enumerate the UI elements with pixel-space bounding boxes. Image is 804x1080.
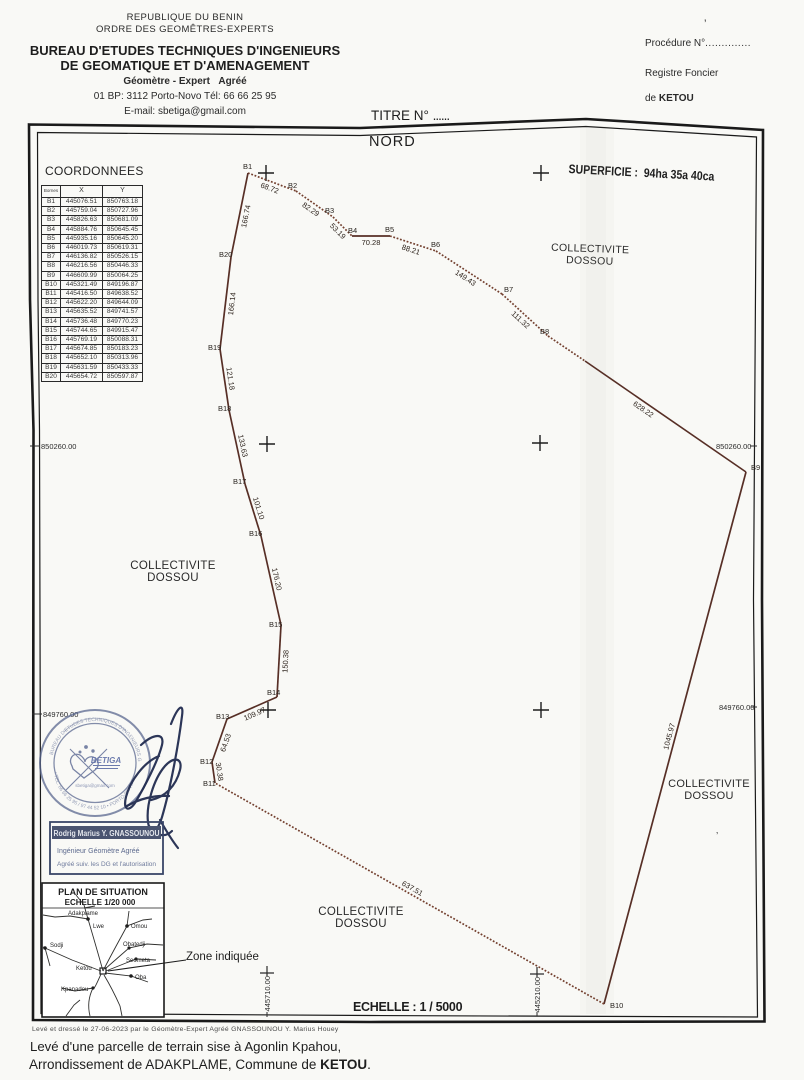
svg-text:ECHELLE 1/20 000: ECHELLE 1/20 000 <box>65 898 136 907</box>
svg-text:B3: B3 <box>325 206 334 215</box>
svg-text:Oba: Oba <box>135 975 147 981</box>
svg-text:Rodrig Marius Y. GNASSOUNOU: Rodrig Marius Y. GNASSOUNOU <box>54 829 160 838</box>
svg-text:B13: B13 <box>216 712 229 721</box>
svg-text:B20: B20 <box>219 250 232 259</box>
svg-text:BUREAU D'ETUDES TECHNIQUES D'I: BUREAU D'ETUDES TECHNIQUES D'INGENIEURS … <box>0 0 142 762</box>
svg-text:Obatedji: Obatedji <box>123 942 145 948</box>
svg-text:Adakplame: Adakplame <box>68 911 99 917</box>
svg-text:445710.00: 445710.00 <box>263 976 272 1011</box>
svg-text:111.32: 111.32 <box>509 309 531 330</box>
svg-text:Ketou: Ketou <box>76 966 92 972</box>
svg-text:B14: B14 <box>267 688 280 697</box>
svg-text:53.19: 53.19 <box>328 221 348 241</box>
svg-text:850260.00: 850260.00 <box>716 442 751 451</box>
svg-text:B4: B4 <box>348 226 357 235</box>
svg-text:637.51: 637.51 <box>400 879 424 898</box>
svg-text:150.38: 150.38 <box>280 650 290 673</box>
svg-text:850260.00: 850260.00 <box>41 442 76 451</box>
svg-text:70.28: 70.28 <box>362 238 381 247</box>
svg-text:B1: B1 <box>243 162 252 171</box>
svg-text:628.22: 628.22 <box>631 399 655 419</box>
svg-text:B11: B11 <box>203 779 216 788</box>
svg-text:Agréé suiv. les DG et l'autori: Agréé suiv. les DG et l'autorisation <box>57 861 156 868</box>
svg-text:PLAN DE SITUATION: PLAN DE SITUATION <box>58 887 148 897</box>
svg-text:109.97: 109.97 <box>242 705 267 722</box>
svg-text:Seometa: Seometa <box>126 958 151 964</box>
svg-text:849760.00: 849760.00 <box>719 703 754 712</box>
svg-text:166.14: 166.14 <box>226 292 238 316</box>
svg-text:Kpanadou: Kpanadou <box>61 987 88 993</box>
svg-text:B2: B2 <box>288 181 297 190</box>
svg-text:B16: B16 <box>249 529 262 538</box>
svg-text:Lwe: Lwe <box>93 924 105 930</box>
svg-text:445210.00: 445210.00 <box>533 977 542 1012</box>
svg-text:B19: B19 <box>208 343 221 352</box>
svg-text:B9: B9 <box>751 463 760 472</box>
svg-text:B10: B10 <box>610 1001 623 1010</box>
svg-text:B15: B15 <box>269 620 282 629</box>
svg-text:Sodji: Sodji <box>50 943 63 949</box>
svg-text:B17: B17 <box>233 477 246 486</box>
svg-text:B6: B6 <box>431 240 440 249</box>
svg-text:Omou: Omou <box>131 924 147 930</box>
svg-text:82.29: 82.29 <box>300 200 321 218</box>
svg-text:sbetiga@gmail.com: sbetiga@gmail.com <box>75 783 115 788</box>
svg-text:BETIGA: BETIGA <box>91 756 121 765</box>
svg-text:68.72: 68.72 <box>259 181 280 196</box>
svg-text:B7: B7 <box>504 285 513 294</box>
svg-text:B5: B5 <box>385 225 394 234</box>
svg-text:B8: B8 <box>540 327 549 336</box>
svg-text:B12: B12 <box>200 757 213 766</box>
svg-text:B18: B18 <box>218 404 231 413</box>
svg-text:Ingénieur Géomètre Agréé: Ingénieur Géomètre Agréé <box>57 848 140 855</box>
